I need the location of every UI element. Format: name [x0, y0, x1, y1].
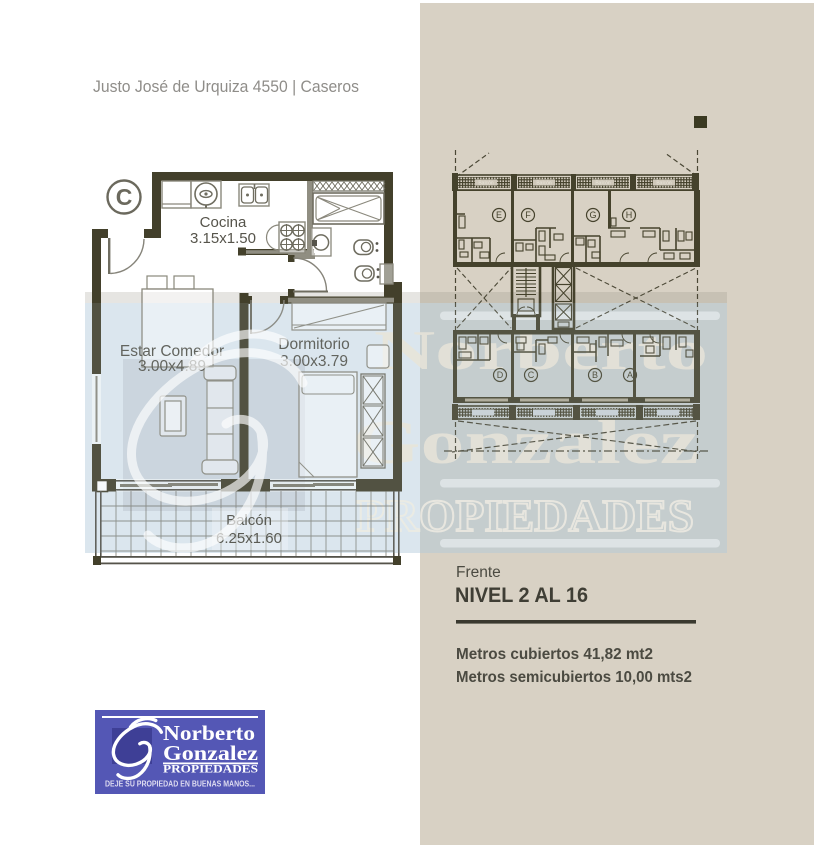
svg-text:Balcón: Balcón [478, 181, 494, 187]
svg-text:G: G [589, 210, 596, 220]
svg-text:H: H [626, 210, 633, 220]
svg-text:Balcón: Balcón [536, 181, 552, 187]
svg-text:Frente: Frente [456, 564, 501, 581]
svg-text:Metros semicubiertos 10,00 mts: Metros semicubiertos 10,00 mts2 [456, 669, 692, 686]
svg-text:Balcón: Balcón [656, 181, 672, 187]
svg-text:DEJE SU PROPIEDAD EN BUENAS MA: DEJE SU PROPIEDAD EN BUENAS MANOS... [105, 779, 255, 789]
svg-text:NIVEL 2 AL 16: NIVEL 2 AL 16 [455, 583, 588, 607]
svg-text:F: F [525, 210, 531, 220]
svg-text:Cocina: Cocina [200, 214, 247, 231]
svg-text:Metros cubiertos 41,82 mt2: Metros cubiertos 41,82 mt2 [456, 646, 653, 663]
svg-text:PROPIEDADES: PROPIEDADES [163, 764, 258, 776]
svg-text:Justo José de Urquiza 4550 |: Justo José de Urquiza 4550 | Caseros [93, 78, 359, 96]
svg-text:C: C [116, 184, 133, 210]
svg-text:Balcón: Balcón [595, 181, 611, 187]
svg-text:E: E [496, 210, 502, 220]
svg-text:3.15x1.50: 3.15x1.50 [190, 230, 256, 247]
svg-text:Gonzalez: Gonzalez [163, 741, 258, 765]
